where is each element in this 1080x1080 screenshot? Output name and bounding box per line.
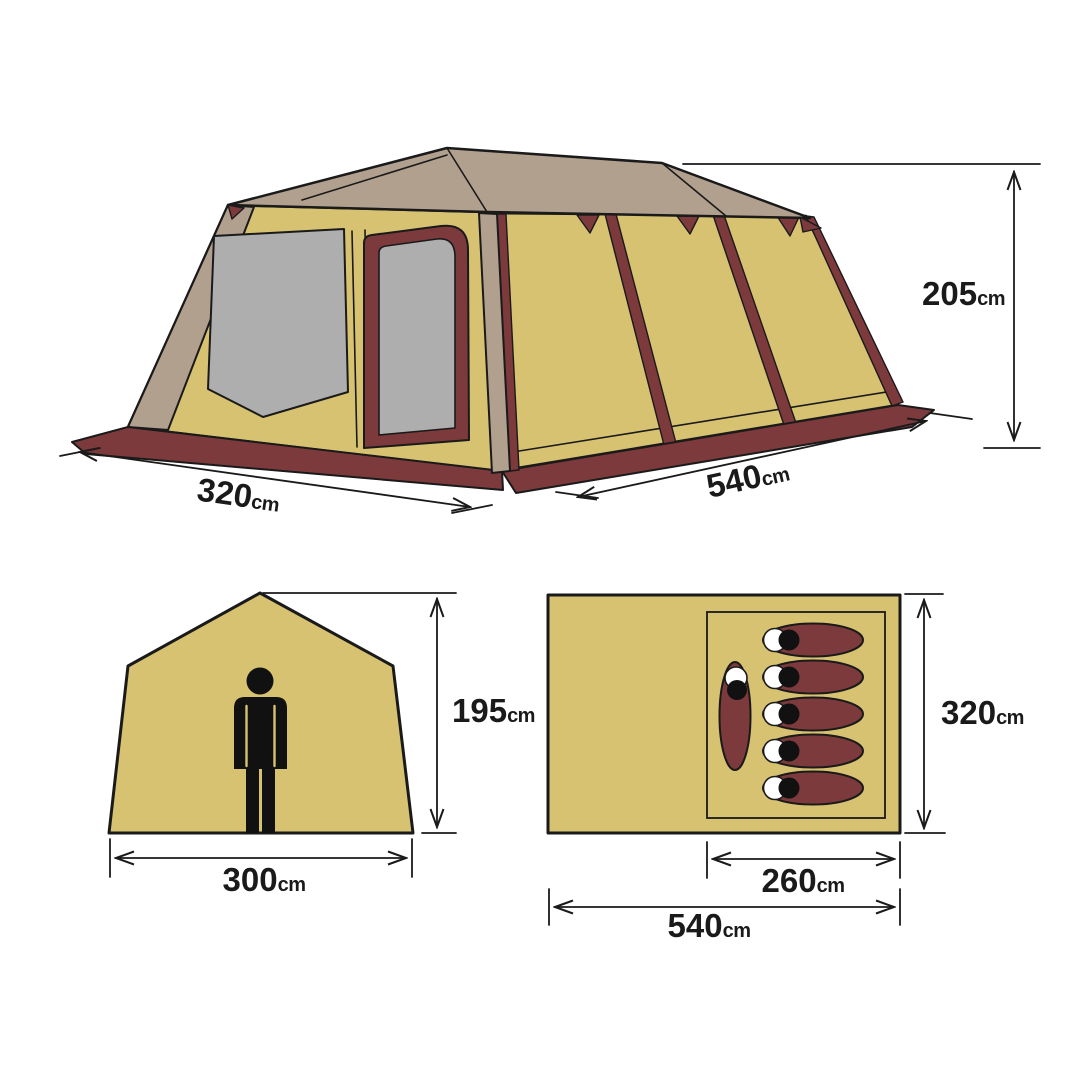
sleeping-bag (763, 772, 863, 805)
tent-front-view: 195cm 300cm (109, 593, 535, 898)
dimension-depth-320-floor: 320cm (905, 594, 1024, 833)
dimension-label-320: 320cm (195, 471, 282, 519)
tent-roof (228, 148, 810, 218)
dimension-tick (930, 413, 972, 419)
seated-person-head (727, 680, 747, 700)
dimension-inner-width-260: 260cm (707, 842, 900, 899)
dimension-tick (556, 492, 598, 498)
seated-person (720, 662, 751, 770)
tent-floor-plan: 320cm 260cm 540cm (548, 594, 1024, 944)
dimension-width-540-floor: 540cm (549, 889, 900, 944)
sleeping-bag (763, 698, 863, 731)
sleeping-bag (763, 624, 863, 657)
person-head (247, 668, 274, 695)
sleeping-bag (763, 661, 863, 694)
dimension-label-205: 205cm (922, 275, 1005, 312)
sleeping-bag (763, 735, 863, 768)
dimension-label-320-floor: 320cm (941, 694, 1024, 731)
product-dimension-diagram: 320cm 540cm 205cm (0, 0, 1080, 1080)
dimension-label-260: 260cm (762, 862, 845, 899)
dimension-label-540-floor: 540cm (668, 907, 751, 944)
door-mesh (379, 239, 455, 435)
tent-perspective-view: 320cm 540cm 205cm (60, 148, 1040, 519)
dimension-label-300: 300cm (223, 861, 306, 898)
sleeper-head (779, 667, 800, 688)
dimension-label-195: 195cm (452, 692, 535, 729)
dimension-width-300: 300cm (110, 839, 412, 898)
front-window-mesh (208, 229, 348, 417)
person-torso (234, 697, 287, 769)
sleeper-head (779, 741, 800, 762)
sleeper-head (779, 704, 800, 725)
person-leg (246, 769, 259, 833)
person-leg (262, 769, 275, 833)
sleeper-head (779, 778, 800, 799)
sleeper-head (779, 630, 800, 651)
